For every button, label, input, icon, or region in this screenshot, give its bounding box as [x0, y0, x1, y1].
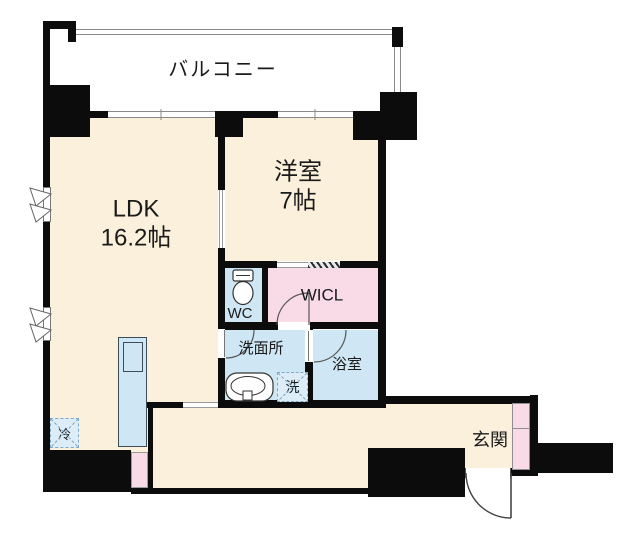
- wall-hall-block: [368, 448, 465, 497]
- wicl-folding-door: [308, 262, 340, 268]
- ldk-hall-opening: [183, 402, 218, 408]
- balcony-railing-top: [75, 29, 400, 35]
- washroom-door-opening: [218, 329, 225, 358]
- wall-ldk-bottom-right: [145, 402, 183, 408]
- entrance-door-opening: [465, 468, 511, 478]
- wall-right: [378, 140, 386, 404]
- western-room-name: 洋室: [274, 158, 322, 187]
- wall-topleft-h: [43, 21, 76, 29]
- ldk-side-window-2: [43, 307, 51, 341]
- wall-pink-right: [148, 402, 153, 490]
- western-room-area: 7帖: [274, 187, 322, 216]
- column-top-mid: [215, 111, 243, 137]
- western-wicl-opening: [277, 262, 308, 268]
- wicl-door-opening: [278, 322, 310, 330]
- wc-label: WC: [228, 305, 253, 323]
- wall-wc-wicl: [262, 262, 268, 322]
- wall-hall-bottom: [131, 488, 368, 494]
- floor-plan: 冷 洗 バルコニー LD: [0, 0, 640, 541]
- ldk-balcony-window: [108, 111, 215, 118]
- shoe-cabinet-lower: [512, 428, 530, 470]
- western-room-label: 洋室 7帖: [274, 158, 322, 217]
- column-topright: [380, 92, 417, 140]
- balcony-label: バルコニー: [168, 58, 278, 82]
- wall-western-bottom-right: [340, 261, 386, 268]
- entry-side-strip: [131, 452, 148, 488]
- wall-wicl-bottom: [310, 322, 386, 329]
- wall-bottomleft-mass: [43, 450, 131, 492]
- ldk-name: LDK: [101, 195, 172, 224]
- wall-wc-bottom: [218, 322, 278, 330]
- washing-machine-space: 洗: [277, 372, 308, 402]
- wall-topleft-stub: [68, 29, 76, 42]
- refrigerator-space: 冷: [50, 418, 79, 448]
- washroom-label: 洗面所: [238, 340, 283, 358]
- ldk-label: LDK 16.2帖: [101, 195, 172, 254]
- western-balcony-window: [278, 111, 353, 118]
- wicl-label: WICL: [301, 286, 344, 307]
- washing-machine-label: 洗: [286, 377, 300, 397]
- refrigerator-label: 冷: [58, 424, 71, 443]
- ldk-side-window-1: [43, 187, 51, 222]
- wall-entrance-right: [530, 395, 538, 470]
- wall-ldk-top-left: [90, 111, 108, 118]
- bathroom-door-opening: [305, 330, 313, 362]
- wall-divider-low: [218, 358, 225, 404]
- shoe-cabinet-upper: [512, 403, 530, 429]
- bathroom-label: 浴室: [332, 356, 362, 374]
- ldk-area: 16.2帖: [101, 224, 172, 253]
- wall-western-top-right: [353, 111, 380, 140]
- wall-western-bottom-left: [225, 261, 277, 268]
- entrance-door-arc: [466, 473, 511, 518]
- wall-divider-mid: [218, 248, 225, 329]
- wall-divider-top: [218, 137, 225, 190]
- ldk-western-sliding-door: [219, 190, 223, 248]
- column-topleft: [43, 85, 90, 137]
- wall-outer-right: [538, 443, 613, 473]
- wall-entrance-top: [386, 396, 532, 404]
- wall-top-mid: [243, 111, 278, 118]
- kitchen-sink: [123, 342, 143, 372]
- balcony-railing-cap: [392, 27, 403, 47]
- entrance-label: 玄関: [472, 430, 508, 452]
